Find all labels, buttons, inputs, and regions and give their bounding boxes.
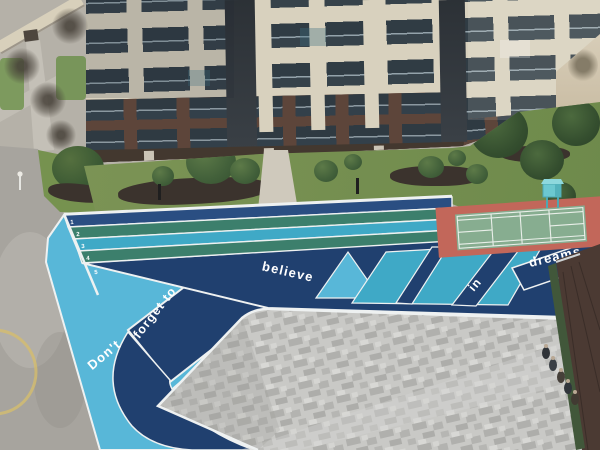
courtyard-aerial-photo: 1 2 3 4 5 Don't forget to believe in dre… (0, 0, 600, 450)
bollard-light (356, 178, 359, 194)
ground-graphics: 1 2 3 4 5 Don't forget to believe in dre… (0, 0, 600, 450)
bollard-light (158, 184, 161, 200)
lamp-head (17, 171, 22, 176)
